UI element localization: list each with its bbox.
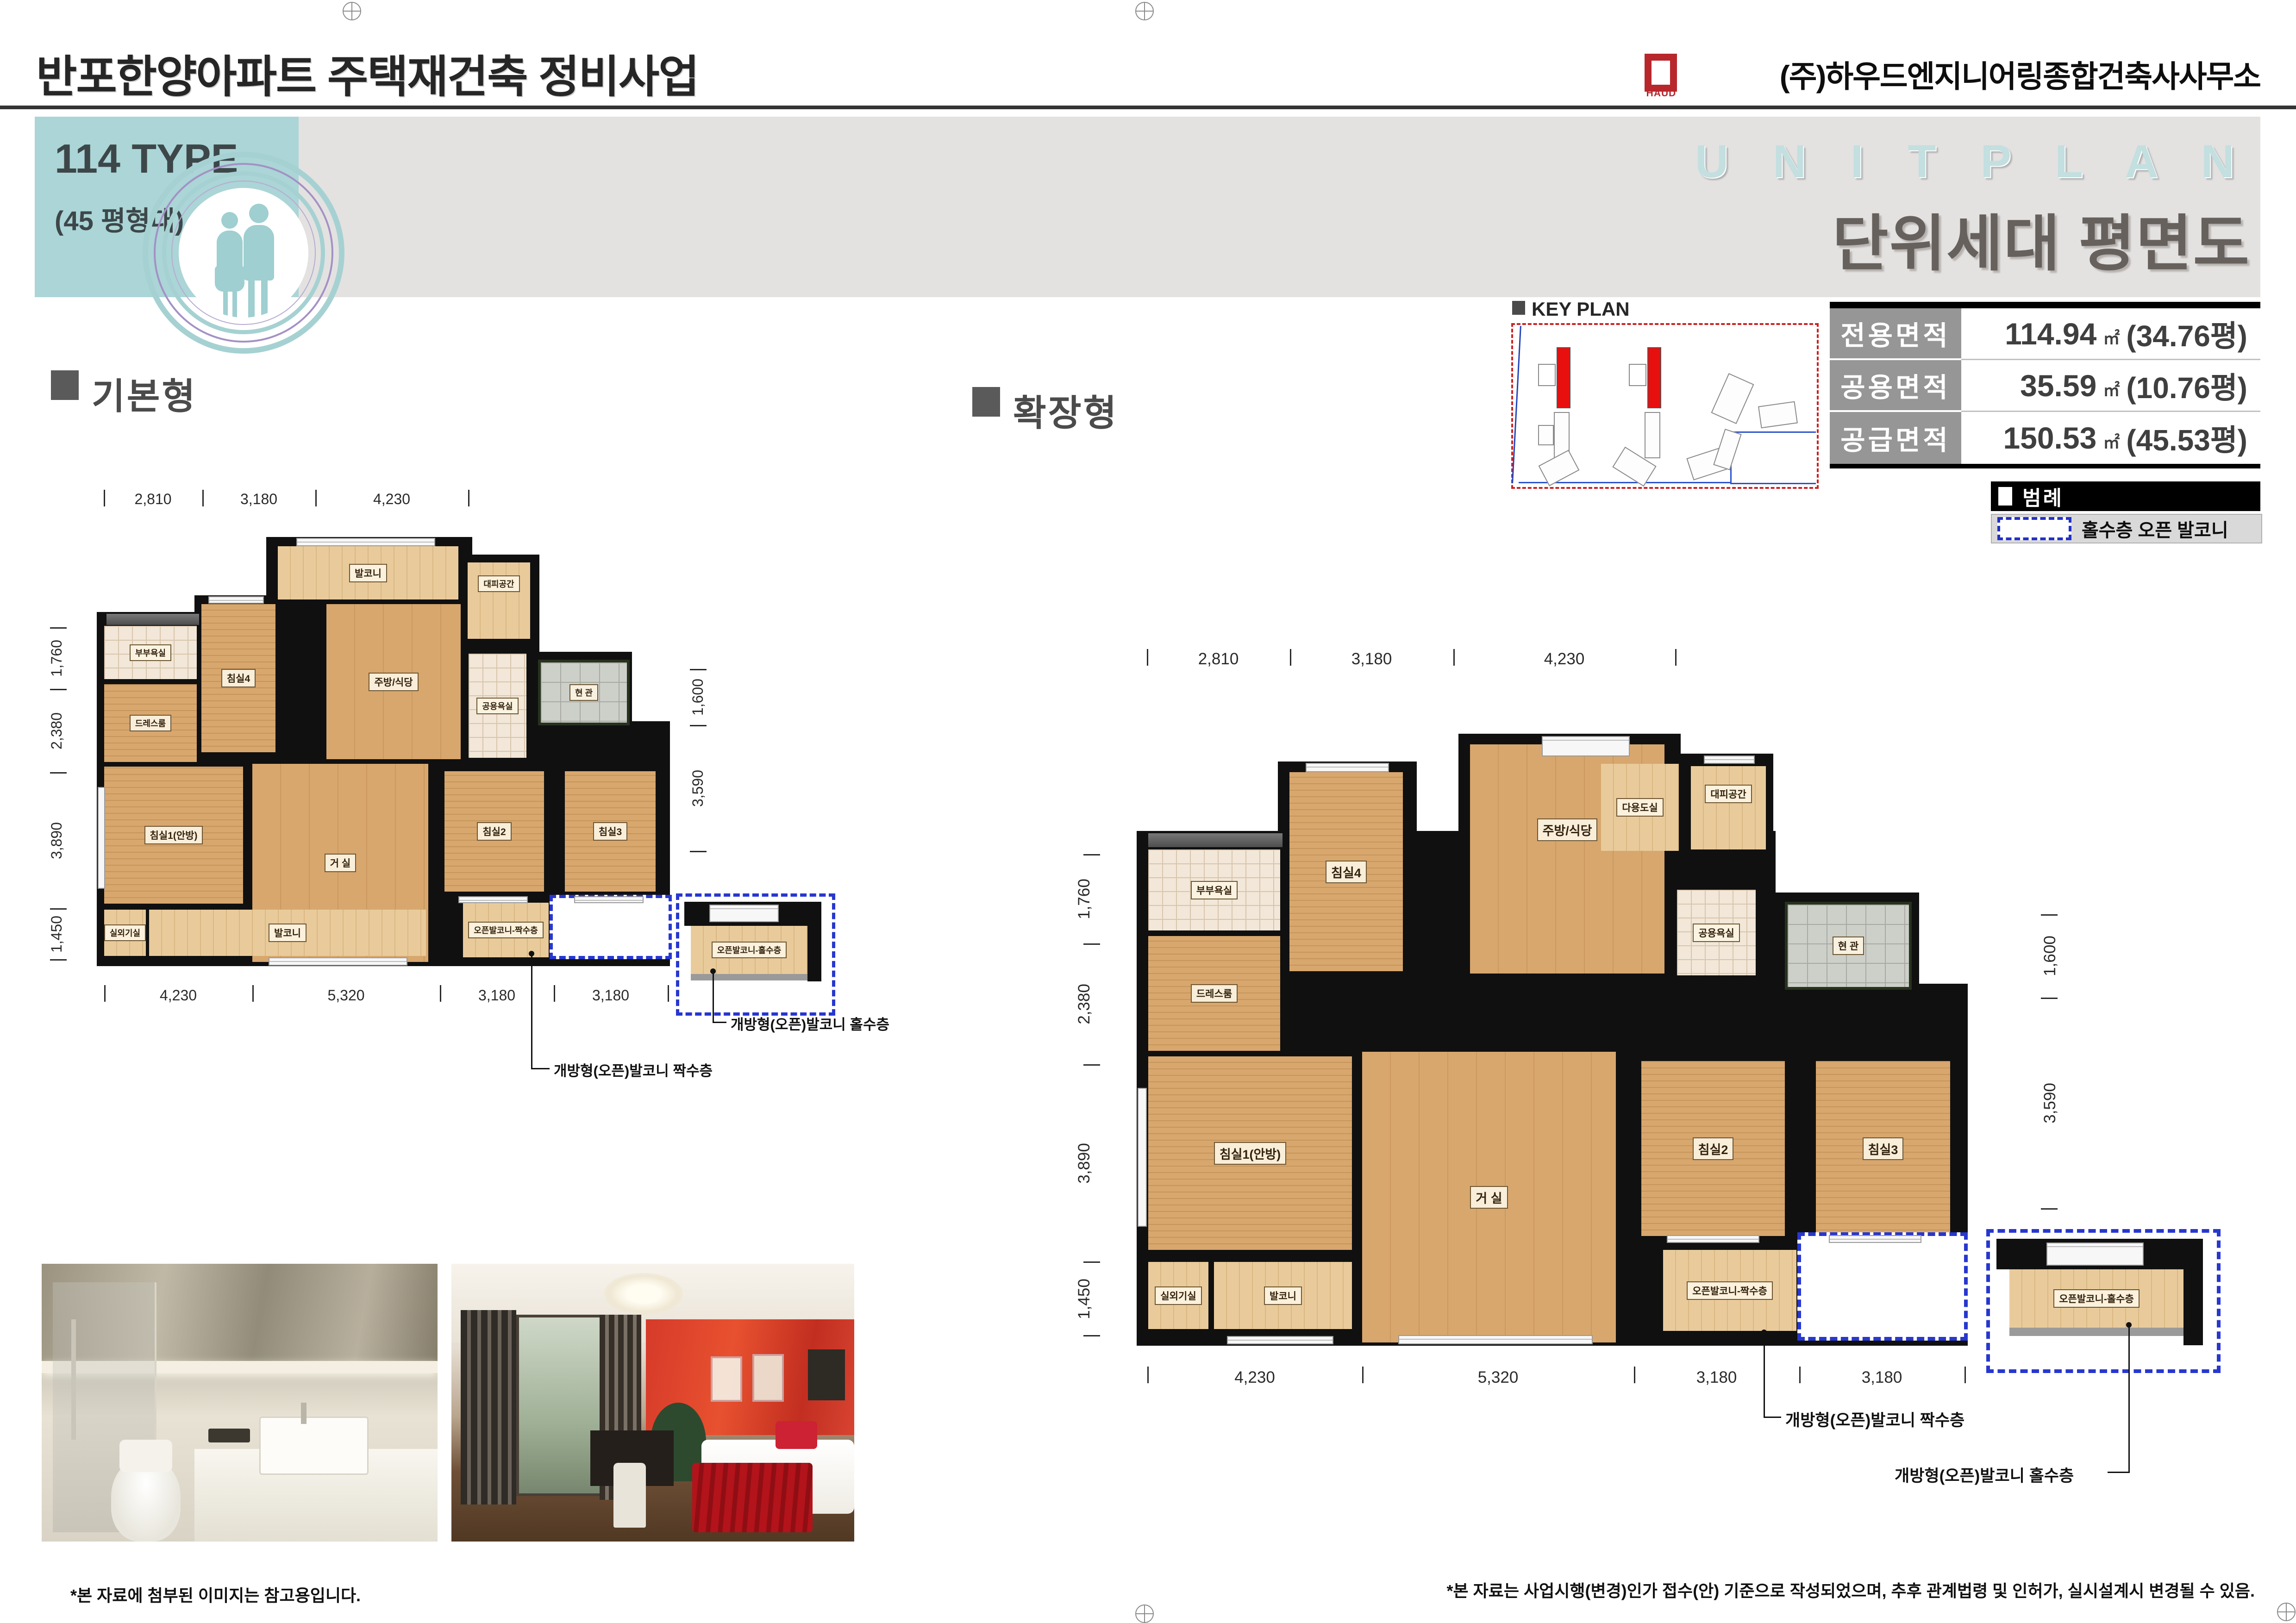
room-label: 대피공간 — [1705, 785, 1752, 803]
legend-item: 홀수층 오픈 발코니 — [1991, 514, 2262, 543]
room-bed1: 침실1(안방) — [104, 767, 243, 904]
kitchen-sink — [1542, 736, 1630, 756]
room-kitchen: 주방/식당 — [326, 604, 461, 759]
site-boundary-blue — [1730, 431, 1816, 484]
room-label: 다용도실 — [1616, 798, 1663, 817]
room-label: 침실4 — [221, 669, 256, 687]
dim-label: 3,590 — [689, 749, 707, 828]
wall-art — [752, 1354, 784, 1402]
dim-label: 1,760 — [48, 619, 66, 698]
room-label: 실외기실 — [104, 924, 146, 941]
couple-emblem — [143, 152, 344, 354]
section-title-basic: 기본형 — [92, 368, 197, 419]
room-label: 침실2 — [1693, 1137, 1734, 1160]
area-unit: ㎡ — [2103, 429, 2120, 453]
faucet — [301, 1403, 307, 1424]
dim-tick — [1083, 1064, 1100, 1066]
dim-label: 2,810 — [104, 491, 202, 508]
dim-tick — [2041, 914, 2058, 916]
room-label: 부부욕실 — [1191, 881, 1238, 899]
dim-label: 1,600 — [2041, 917, 2058, 995]
balcony-shadow — [691, 974, 807, 980]
dim-tick — [468, 490, 469, 506]
room-label: 오픈발코니-짝수층 — [1687, 1281, 1773, 1300]
room-label: 드레스룸 — [1191, 984, 1238, 1003]
room-living: 거 실 — [1362, 1052, 1616, 1342]
room-master-bath: 부부욕실 — [104, 626, 197, 679]
area-label: 공용면적 — [1830, 360, 1961, 412]
section-title-extended: 확장형 — [1013, 384, 1118, 436]
dim-tick — [668, 985, 669, 1002]
room-open-balcony-odd: 오픈발코니-홀수층 — [2009, 1269, 2183, 1328]
photo-bathroom — [42, 1264, 438, 1542]
room-common-bath: 공용욕실 — [1677, 890, 1756, 975]
room-shelter: 대피공간 — [468, 562, 530, 639]
room-label: 거 실 — [1470, 1186, 1508, 1209]
room-bed3: 침실3 — [1816, 1061, 1950, 1236]
photo-bedroom — [451, 1264, 854, 1542]
dim-label: 4,230 — [1147, 1368, 1362, 1387]
area-number: 35.59 — [2020, 368, 2096, 403]
room-dress: 드레스룸 — [1148, 936, 1280, 1051]
legend-title: 범례 — [2022, 481, 2064, 511]
curtain — [461, 1310, 516, 1504]
dim-label: 1,600 — [689, 658, 707, 737]
red-throw — [692, 1463, 813, 1532]
window — [1829, 1235, 1921, 1243]
dim-tick — [2041, 1208, 2058, 1210]
area-number: 114.94 — [2005, 316, 2096, 351]
dim-label: 3,180 — [1634, 1368, 1799, 1387]
wall-art — [711, 1356, 742, 1402]
page-title: 반포한양아파트 주택재건축 정비사업 — [36, 41, 698, 105]
area-unit: ㎡ — [2103, 325, 2120, 349]
area-pyeong: (45.53평) — [2126, 417, 2247, 459]
area-unit: ㎡ — [2103, 377, 2120, 401]
room-master-bath: 부부욕실 — [1148, 849, 1280, 930]
area-value: 35.59 ㎡ (10.76평) — [1961, 360, 2260, 412]
area-number: 150.53 — [2003, 420, 2096, 456]
legend-item-label: 홀수층 오픈 발코니 — [2082, 515, 2228, 542]
dim-tick — [2041, 998, 2058, 999]
room-entrance: 현 관 — [538, 660, 630, 725]
room-balcony-bottom: 발코니 — [149, 910, 426, 956]
callout-line — [713, 1022, 726, 1023]
open-balcony-void-dashed — [1797, 1232, 1968, 1341]
footnote-right: *본 자료는 사업시행(변경)인가 접수(안) 기준으로 작성되었으며, 추후 … — [1278, 1578, 2255, 1602]
callout-even: 개방형(오픈)발코니 짝수층 — [1785, 1407, 1964, 1431]
dim-label: 3,590 — [2041, 1064, 2058, 1142]
crop-mark-icon — [2277, 1603, 2296, 1621]
room-dress: 드레스룸 — [104, 684, 197, 762]
room-bed2: 침실2 — [444, 771, 544, 892]
keyplan-bullet — [1512, 301, 1525, 315]
room-label: 거 실 — [325, 854, 356, 872]
room-bed1: 침실1(안방) — [1148, 1056, 1352, 1250]
window — [574, 896, 644, 903]
room-bed2: 침실2 — [1641, 1061, 1785, 1236]
open-balcony-void-dashed — [550, 895, 672, 959]
wall-art-dark — [808, 1349, 845, 1400]
open-balcony-dashed-icon — [1997, 517, 2071, 540]
building-outline — [1645, 412, 1660, 458]
window — [709, 905, 779, 922]
table-row: 공용면적 35.59 ㎡ (10.76평) — [1830, 360, 2260, 412]
room-label: 공용욕실 — [1693, 924, 1739, 942]
room-label: 드레스룸 — [130, 715, 171, 731]
room-label: 부부욕실 — [130, 644, 171, 661]
section-bullet-extended — [972, 387, 1000, 417]
unit-plan-title-ko: 단위세대 평면도 — [1519, 194, 2250, 283]
highlighted-building — [1557, 347, 1570, 408]
chair — [613, 1463, 646, 1528]
window — [458, 896, 528, 903]
window — [98, 787, 105, 889]
keyplan-map — [1509, 321, 1821, 491]
balcony-shadow — [2009, 1328, 2183, 1336]
legend-header: 범례 — [1991, 481, 2260, 511]
silhouette-part — [261, 280, 268, 318]
table-row: 공급면적 150.53 ㎡ (45.53평) — [1830, 412, 2260, 464]
room-open-balcony-even: 오픈발코니-짝수층 — [1663, 1250, 1796, 1331]
room-label: 현 관 — [1833, 936, 1864, 955]
wall-block — [807, 902, 821, 981]
room-label: 공용욕실 — [476, 698, 518, 714]
dim-label: 4,230 — [1453, 650, 1675, 668]
area-table: 전용면적 114.94 ㎡ (34.76평) 공용면적 35.59 ㎡ (10.… — [1830, 302, 2260, 468]
dim-label: 4,230 — [315, 491, 468, 508]
unit-plan-title-en: U N I T P L A N — [1519, 135, 2250, 188]
room-label: 침실2 — [477, 822, 511, 841]
dim-tick — [1964, 1367, 1966, 1383]
room-common-bath: 공용욕실 — [469, 654, 526, 758]
window — [1704, 755, 1755, 764]
room-label: 현 관 — [569, 684, 598, 701]
silhouette-part — [249, 204, 269, 223]
wash-basin — [259, 1417, 369, 1475]
room-label: 발코니 — [349, 564, 387, 582]
window — [1398, 1335, 1593, 1344]
callout-line — [2108, 1472, 2130, 1473]
callout-line — [531, 954, 532, 1069]
dim-label: 3,890 — [48, 801, 66, 880]
dim-label: 2,380 — [1075, 965, 1093, 1043]
dim-tick — [1083, 854, 1100, 855]
room-label: 침실1(안방) — [144, 826, 203, 844]
window — [296, 538, 435, 546]
dim-label: 3,180 — [202, 491, 315, 508]
room-shelter: 대피공간 — [1691, 766, 1766, 849]
room-label: 발코니 — [269, 924, 307, 942]
area-pyeong: (34.76평) — [2126, 312, 2247, 355]
room-open-balcony-odd: 오픈발코니-홀수층 — [691, 926, 807, 974]
dim-label: 3,180 — [1799, 1368, 1964, 1387]
room-label: 침실1(안방) — [1214, 1142, 1286, 1165]
window — [269, 957, 407, 966]
crop-mark-icon — [1135, 1604, 1154, 1623]
highlighted-building — [1647, 347, 1661, 408]
tray — [208, 1429, 250, 1442]
keyplan-label: KEY PLAN — [1532, 298, 1630, 320]
room-utility: 다용도실 — [1601, 764, 1679, 851]
window — [1306, 763, 1389, 772]
callout-line — [531, 1068, 550, 1069]
dim-tick — [1675, 649, 1677, 666]
dim-label: 1,760 — [1075, 860, 1093, 938]
building-outline — [1629, 364, 1646, 386]
silhouette-part — [221, 212, 238, 229]
crop-mark-icon — [343, 2, 361, 20]
haud-logo-text: HAUD — [1643, 88, 1680, 99]
room-label: 침실3 — [593, 822, 627, 841]
room-open-balcony-even: 오픈발코니-짝수층 — [463, 903, 549, 957]
room-label: 실외기실 — [1155, 1286, 1201, 1305]
window — [1667, 1235, 1759, 1243]
room-entrance: 현 관 — [1785, 902, 1912, 990]
dim-label: 3,180 — [440, 987, 554, 1004]
room-label: 오픈발코니-짝수층 — [468, 922, 543, 938]
dim-tick — [690, 851, 707, 852]
silhouette-part — [244, 225, 274, 281]
callout-odd: 개방형(오픈)발코니 홀수층 — [731, 1013, 889, 1034]
callout-line — [1764, 1332, 1765, 1418]
silhouette-part — [215, 266, 244, 292]
callout-line — [1764, 1417, 1781, 1418]
area-value: 114.94 ㎡ (34.76평) — [1961, 308, 2260, 360]
room-bed4: 침실4 — [1289, 772, 1403, 971]
area-pyeong: (10.76평) — [2126, 364, 2247, 407]
haud-logo-icon — [1645, 54, 1677, 92]
area-label: 공급면적 — [1830, 412, 1961, 464]
section-bullet-basic — [51, 370, 79, 400]
couple-silhouette-icon — [179, 188, 308, 318]
window — [208, 596, 264, 604]
dim-label: 3,890 — [1075, 1124, 1093, 1203]
callout-line — [713, 971, 714, 1023]
dim-label: 2,810 — [1147, 650, 1290, 668]
crop-mark-icon — [1135, 2, 1154, 20]
dim-label: 4,230 — [104, 987, 252, 1004]
room-label: 주방/식당 — [369, 673, 418, 691]
header-rule — [0, 106, 2296, 109]
ceiling-light — [604, 1273, 683, 1315]
building-outline — [1538, 364, 1556, 386]
ac-ledge — [1148, 833, 1283, 847]
room-label: 오픈발코니-홀수층 — [712, 942, 787, 958]
dim-label: 1,450 — [48, 895, 66, 974]
room-label: 대피공간 — [478, 575, 519, 592]
dim-label: 3,180 — [554, 987, 668, 1004]
dim-label: 5,320 — [252, 987, 440, 1004]
silhouette-part — [232, 292, 237, 318]
room-ac: 실외기실 — [1148, 1262, 1208, 1329]
room-label: 주방/식당 — [1537, 818, 1598, 841]
room-ac: 실외기실 — [104, 910, 146, 956]
building-outline — [1538, 425, 1554, 445]
room-bed4: 침실4 — [201, 604, 275, 752]
room-label: 침실3 — [1863, 1137, 1904, 1160]
area-label: 전용면적 — [1830, 308, 1961, 360]
dim-label: 3,180 — [1290, 650, 1453, 668]
room-balcony-top: 발코니 — [278, 546, 458, 599]
table-row: 전용면적 114.94 ㎡ (34.76평) — [1830, 308, 2260, 360]
room-bed3: 침실3 — [565, 771, 656, 892]
legend-bullet — [1998, 487, 2012, 506]
callout-line — [2128, 1325, 2130, 1473]
callout-even: 개방형(오픈)발코니 짝수층 — [554, 1059, 713, 1080]
window — [1227, 1336, 1333, 1344]
silhouette-part — [248, 280, 255, 318]
area-value: 150.53 ㎡ (45.53평) — [1961, 412, 2260, 464]
callout-odd: 개방형(오픈)발코니 홀수층 — [1895, 1463, 2074, 1486]
silhouette-part — [223, 292, 228, 318]
page: 반포한양아파트 주택재건축 정비사업 HAUD (주)하우드엔지니어링종합건축사… — [0, 0, 2296, 1623]
toilet-tank — [119, 1440, 172, 1472]
ac-ledge — [106, 614, 199, 625]
dim-tick — [1083, 943, 1100, 945]
shower-rail — [71, 1319, 76, 1440]
footnote-left: *본 자료에 첨부된 이미지는 참고용입니다. — [70, 1582, 361, 1606]
room-balcony-bottom: 발코니 — [1214, 1262, 1352, 1329]
dim-label: 2,380 — [48, 692, 66, 770]
dim-label: 1,450 — [1075, 1260, 1093, 1338]
dim-label: 5,320 — [1362, 1368, 1634, 1387]
wall-block — [2183, 1239, 2203, 1345]
dim-tick — [50, 772, 67, 774]
window — [1138, 1088, 1147, 1227]
room-label: 침실4 — [1326, 861, 1367, 883]
room-label: 오픈발코니-홀수층 — [2053, 1289, 2140, 1308]
room-label: 발코니 — [1264, 1286, 1302, 1305]
window — [2046, 1242, 2144, 1266]
company-name: (주)하우드엔지니어링종합건축사사무소 — [1681, 52, 2260, 96]
red-pillow — [776, 1421, 817, 1449]
